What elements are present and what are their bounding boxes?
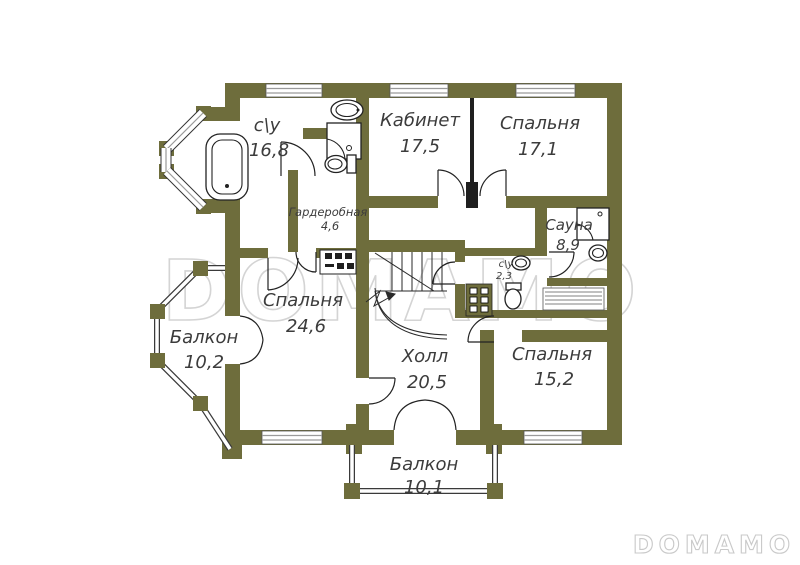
room-label-bedroom-left-area: 24,6 — [286, 316, 326, 337]
window — [524, 431, 582, 444]
wall-segment — [455, 248, 547, 256]
door-opening — [394, 430, 456, 445]
room-label-balcony-left-area: 10,2 — [184, 352, 224, 373]
floor-plan-page: DOMAMO — [0, 0, 800, 565]
wall-segment — [225, 364, 240, 445]
wall-segment — [356, 258, 369, 378]
room-label-hall-area: 20,5 — [407, 372, 447, 393]
wall-segment — [607, 83, 622, 445]
wall-segment — [547, 278, 607, 286]
toilet — [505, 283, 521, 309]
railing-post — [487, 483, 503, 499]
wall-segment — [240, 248, 268, 258]
railing-post — [150, 353, 165, 368]
window — [516, 84, 575, 97]
room-label-bathroom-small-area: 2,3 — [496, 271, 512, 282]
sink — [331, 100, 363, 120]
room-label-office-name: Кабинет — [380, 110, 460, 131]
wall-segment — [369, 196, 438, 208]
shower — [327, 123, 361, 159]
floor-plan-canvas: DOMAMO — [0, 0, 800, 565]
room-label-balcony-left-name: Балкон — [170, 327, 239, 348]
room-label-bedroom-right-name: Спальня — [512, 344, 592, 365]
sink — [589, 245, 607, 261]
partition-wall — [470, 98, 474, 184]
room-label-office-area: 17,5 — [400, 136, 440, 157]
sauna-benches — [543, 288, 604, 310]
room-label-bathroom-small-name: с\у — [499, 259, 515, 270]
window — [262, 431, 322, 444]
window — [266, 84, 322, 97]
room-label-hall-name: Холл — [401, 346, 448, 367]
sink — [512, 256, 530, 270]
wall-segment — [225, 206, 240, 316]
room-label-bedroom-top-area: 17,1 — [518, 139, 558, 160]
room-label-balcony-bottom-area: 10,1 — [404, 477, 444, 498]
wall-segment — [480, 340, 494, 430]
window — [390, 84, 448, 97]
wall-stub — [466, 182, 478, 208]
wall-segment — [522, 330, 607, 342]
vent-grid — [466, 284, 492, 316]
wall-segment — [356, 98, 369, 258]
room-label-sauna-name: Сауна — [545, 216, 593, 234]
room-label-balcony-bottom-name: Балкон — [390, 454, 459, 475]
watermark-corner: DOMAMO — [633, 530, 795, 559]
room-label-bathroom-main-name: с\у — [254, 115, 281, 136]
room-label-sauna-area: 8,9 — [556, 236, 580, 254]
wall-segment — [506, 196, 607, 208]
toilet — [325, 155, 356, 173]
wall-segment — [369, 240, 455, 252]
room-label-bathroom-main-area: 16,8 — [249, 140, 289, 161]
room-label-bedroom-left-name: Спальня — [263, 290, 343, 311]
railing-post — [150, 304, 165, 319]
bathtub — [206, 134, 248, 200]
room-label-bedroom-right-area: 15,2 — [534, 369, 574, 390]
railing-post — [344, 483, 360, 499]
railing-post — [193, 261, 208, 276]
room-label-bedroom-top-name: Спальня — [500, 113, 580, 134]
vent-grid — [320, 250, 356, 274]
wall-segment — [455, 240, 465, 256]
railing-post — [193, 396, 208, 411]
room-label-wardrobe-area: 4,6 — [321, 219, 339, 233]
room-label-wardrobe-name: Гардеробная — [289, 205, 368, 219]
